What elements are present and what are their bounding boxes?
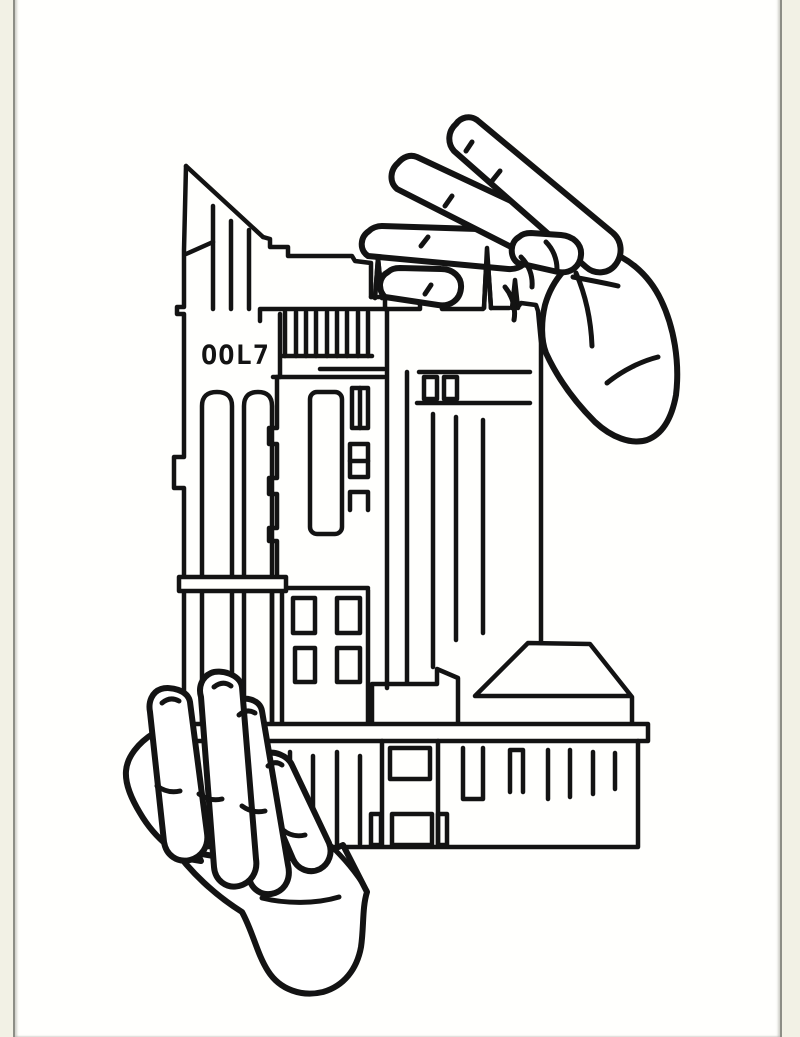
upper-thumb (512, 233, 581, 272)
window (295, 648, 315, 682)
ledge-band (179, 577, 286, 591)
upper-pinky-finger (380, 268, 461, 305)
upper-palm (542, 248, 677, 441)
door-window (390, 748, 430, 779)
podium-block (475, 643, 632, 727)
window (337, 598, 360, 633)
line-art-illustration: OOL7 (0, 0, 800, 1033)
window (293, 598, 315, 633)
left-tower (174, 166, 280, 724)
building-sign-text: OOL7 (201, 340, 270, 371)
window (337, 648, 360, 682)
document-background: { "artwork": { "description": "Black ink… (0, 0, 800, 1033)
middle-tower (260, 237, 386, 728)
tall-window (310, 392, 342, 534)
lower-hand-drawing (126, 672, 367, 994)
